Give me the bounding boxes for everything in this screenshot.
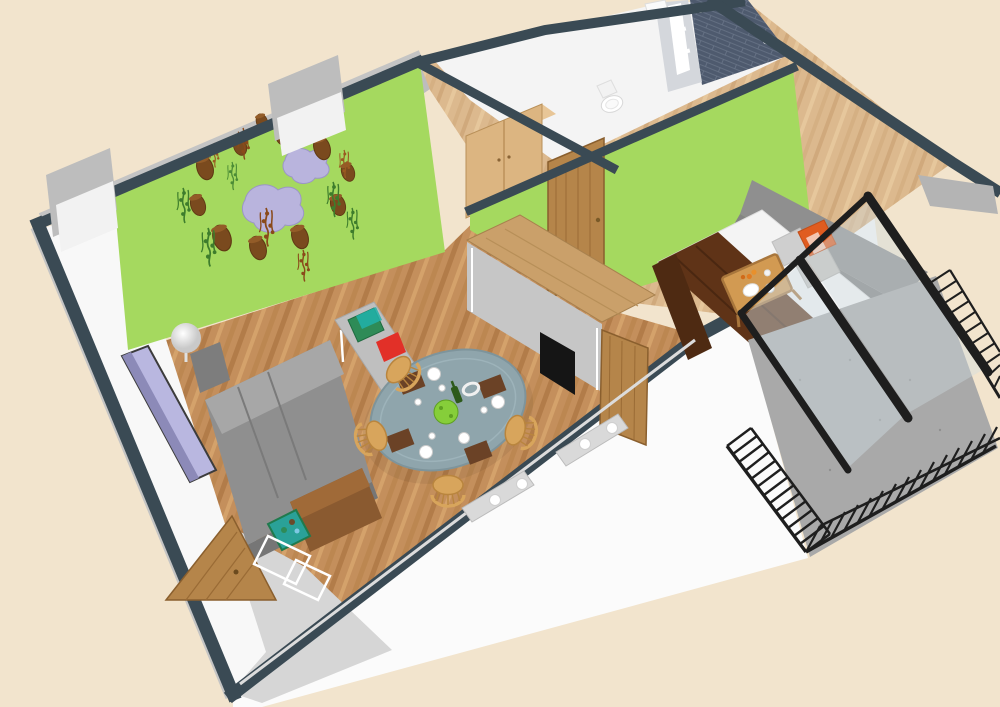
sphere-lamp [171,323,201,353]
salad-leaf [449,414,453,418]
wardrobe-knob [497,158,500,161]
glass [429,433,435,439]
plate [420,446,433,459]
plate [459,433,470,444]
plate [492,396,505,409]
plate [428,368,441,381]
salad-bowl [434,400,458,424]
door-handle [596,218,600,222]
toy-item [281,527,287,533]
dining-chair [432,476,464,507]
glass [415,399,421,405]
floor-plan-stage [0,0,1000,707]
glass [481,407,487,413]
toy-item [289,519,295,525]
floor-plan-render [0,0,1000,707]
wardrobe-knob [507,155,510,158]
radiator-knob [580,439,591,450]
radiator-knob [490,495,501,506]
toy-item [295,529,300,534]
radiator-knob [517,479,528,490]
salad-leaf [439,406,443,410]
entrance-door-handle [234,570,239,575]
radiator-knob [607,423,618,434]
speckle [939,429,941,431]
glass [439,385,445,391]
speckle [829,469,831,471]
